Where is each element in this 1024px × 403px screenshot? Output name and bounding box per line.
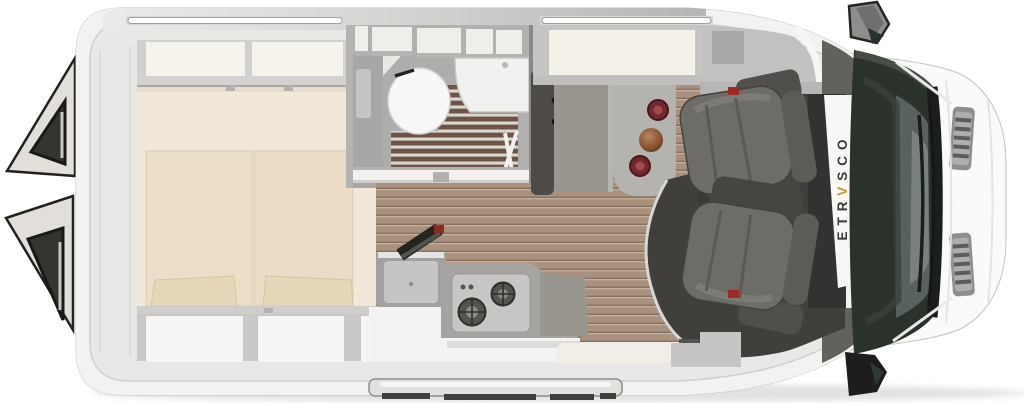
svg-text:ETRVSCO: ETRVSCO — [835, 133, 850, 240]
